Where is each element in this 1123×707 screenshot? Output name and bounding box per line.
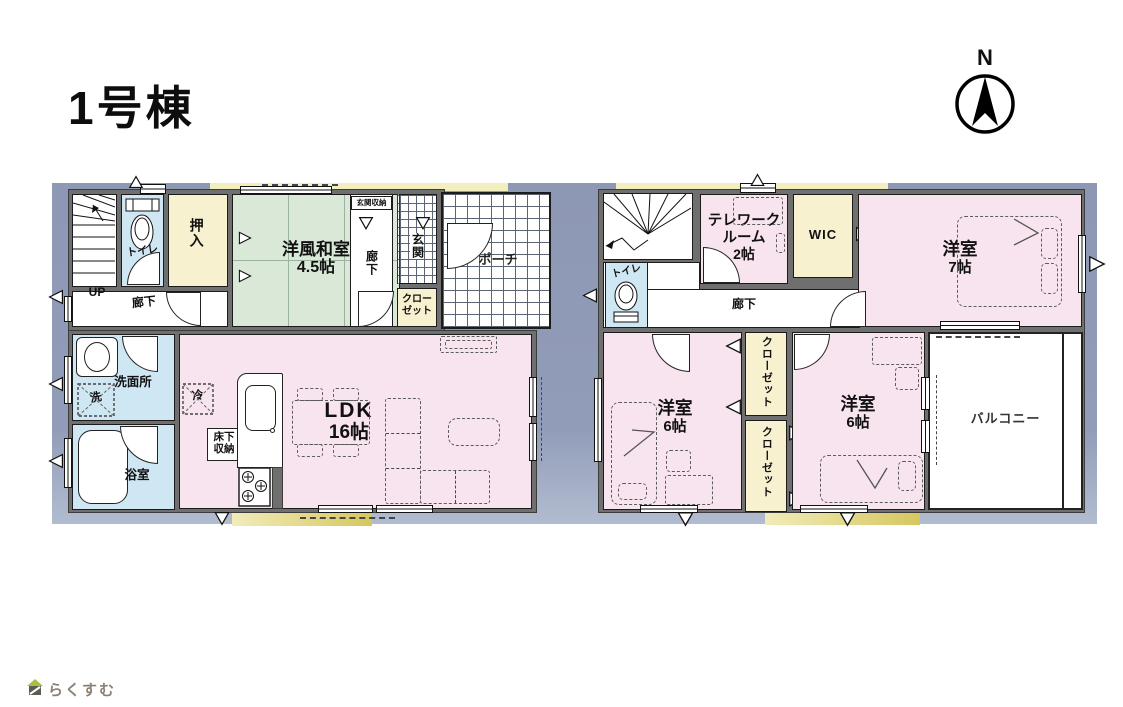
marker-triangle-up bbox=[749, 173, 766, 187]
wic-label: WIC bbox=[793, 228, 853, 243]
window-dashline bbox=[936, 375, 937, 465]
closet-1f-line2: ゼット bbox=[397, 306, 437, 317]
washbasin-bowl-icon bbox=[84, 342, 110, 372]
ldk-bottom-window bbox=[318, 505, 373, 513]
bed-fold-line bbox=[855, 458, 889, 492]
bedroom6b-bottom-window bbox=[800, 505, 868, 513]
bed-pillow bbox=[618, 483, 647, 500]
marker-triangle-down bbox=[415, 216, 431, 232]
dining-chair bbox=[333, 444, 359, 457]
marker-triangle-left bbox=[48, 375, 64, 393]
marker-triangle-down bbox=[213, 511, 231, 526]
marker-triangle-up bbox=[128, 175, 144, 189]
dining-table bbox=[292, 400, 370, 445]
telework-chair bbox=[776, 233, 785, 253]
desk bbox=[665, 475, 713, 505]
bed-fold-line bbox=[622, 428, 656, 458]
marker-triangle-down bbox=[676, 511, 695, 527]
eave-dashline-1f-bottom bbox=[300, 517, 395, 519]
ldk-right-window bbox=[529, 377, 537, 417]
bed-pillow bbox=[1041, 228, 1058, 259]
balcony-label: バルコニー bbox=[948, 412, 1063, 427]
sofa-seam bbox=[386, 433, 420, 434]
floorplan-page: 1号棟 N ポーチ トイレ 押入 bbox=[0, 0, 1123, 707]
chair bbox=[666, 450, 691, 472]
underfloor-line1: 床下 bbox=[207, 432, 241, 444]
bedroom6b-size: 6帖 bbox=[820, 415, 896, 432]
coffee-table bbox=[448, 418, 500, 446]
faucet-icon bbox=[270, 428, 275, 433]
oshiire-label: 押入 bbox=[188, 218, 204, 248]
marker-triangle-right bbox=[238, 268, 252, 284]
compass-icon bbox=[953, 70, 1017, 136]
balcony-dashline bbox=[936, 336, 1020, 338]
bedroom7-balcony-window bbox=[940, 321, 1020, 330]
entry-hall-label: 廊下 bbox=[364, 250, 377, 276]
room-stairs-2f bbox=[603, 193, 693, 260]
tv-board-inner bbox=[445, 340, 492, 349]
genkan-label: 玄関 bbox=[410, 233, 423, 259]
washroom-window bbox=[64, 356, 72, 404]
ldk-right-window bbox=[529, 423, 537, 461]
dining-chair bbox=[297, 388, 323, 401]
stairs-up-icon bbox=[73, 195, 115, 285]
bathroom-label: 浴室 bbox=[112, 468, 162, 482]
hall-2f-label: 廊下 bbox=[722, 298, 766, 311]
stairs-window bbox=[64, 296, 72, 322]
marker-triangle-left bbox=[725, 337, 742, 355]
marker-triangle-left bbox=[582, 287, 598, 304]
window-dashline bbox=[541, 377, 542, 461]
stairs-down-icon bbox=[604, 194, 691, 258]
bathroom-window bbox=[64, 438, 72, 488]
chair bbox=[895, 367, 919, 390]
kitchen-wall-stub bbox=[272, 467, 283, 509]
underfloor-line2: 収納 bbox=[207, 444, 241, 456]
kitchen-sink-icon bbox=[245, 385, 276, 431]
dining-chair bbox=[333, 388, 359, 401]
room-stairs-1f bbox=[72, 194, 117, 287]
toilet-icon-2f bbox=[610, 280, 643, 324]
ldk-bottom-window bbox=[376, 505, 433, 513]
tatami-window bbox=[240, 186, 332, 194]
rakusumu-logo-icon bbox=[27, 679, 43, 695]
marker-triangle-right bbox=[1088, 252, 1106, 276]
telework-desk bbox=[733, 197, 783, 225]
closet-1f-line1: クロー bbox=[397, 294, 437, 305]
sofa-seam bbox=[386, 468, 420, 469]
bedroom7-right-window bbox=[1078, 235, 1086, 293]
marker-triangle-left bbox=[48, 288, 64, 306]
entry-storage-label: 玄関収納 bbox=[351, 199, 392, 207]
desk bbox=[872, 337, 922, 365]
rakusumu-logo-text: らくすむ bbox=[48, 679, 116, 700]
bedroom6b-balcony-window bbox=[921, 377, 930, 410]
marker-triangle-right bbox=[238, 230, 252, 246]
marker-triangle-left bbox=[48, 452, 64, 470]
up-label: UP bbox=[80, 286, 114, 299]
bathtub-icon bbox=[78, 430, 128, 504]
compass-north-label: N bbox=[953, 46, 1017, 71]
telework-line2: ルーム bbox=[702, 230, 786, 246]
bedroom6b-name: 洋室 bbox=[820, 395, 896, 415]
bedroom6a-left-window bbox=[594, 378, 602, 462]
eave-1f-bottom bbox=[232, 513, 372, 526]
bed-pillow bbox=[898, 461, 916, 491]
bed-pillow bbox=[1041, 263, 1058, 294]
closet-b-label: クローゼット bbox=[760, 426, 772, 498]
sofa-seam bbox=[455, 471, 456, 503]
stove-icon bbox=[238, 467, 271, 507]
dining-chair bbox=[297, 444, 323, 457]
bed-fold-line bbox=[1012, 217, 1042, 247]
sofa-vertical bbox=[385, 398, 421, 504]
marker-triangle-down bbox=[358, 216, 374, 232]
page-title: 1号棟 bbox=[68, 72, 195, 138]
closet-a-label: クローゼット bbox=[760, 336, 772, 408]
marker-triangle-down bbox=[838, 511, 857, 527]
bedroom6b-balcony-window bbox=[921, 420, 930, 453]
marker-triangle-left bbox=[725, 398, 742, 416]
